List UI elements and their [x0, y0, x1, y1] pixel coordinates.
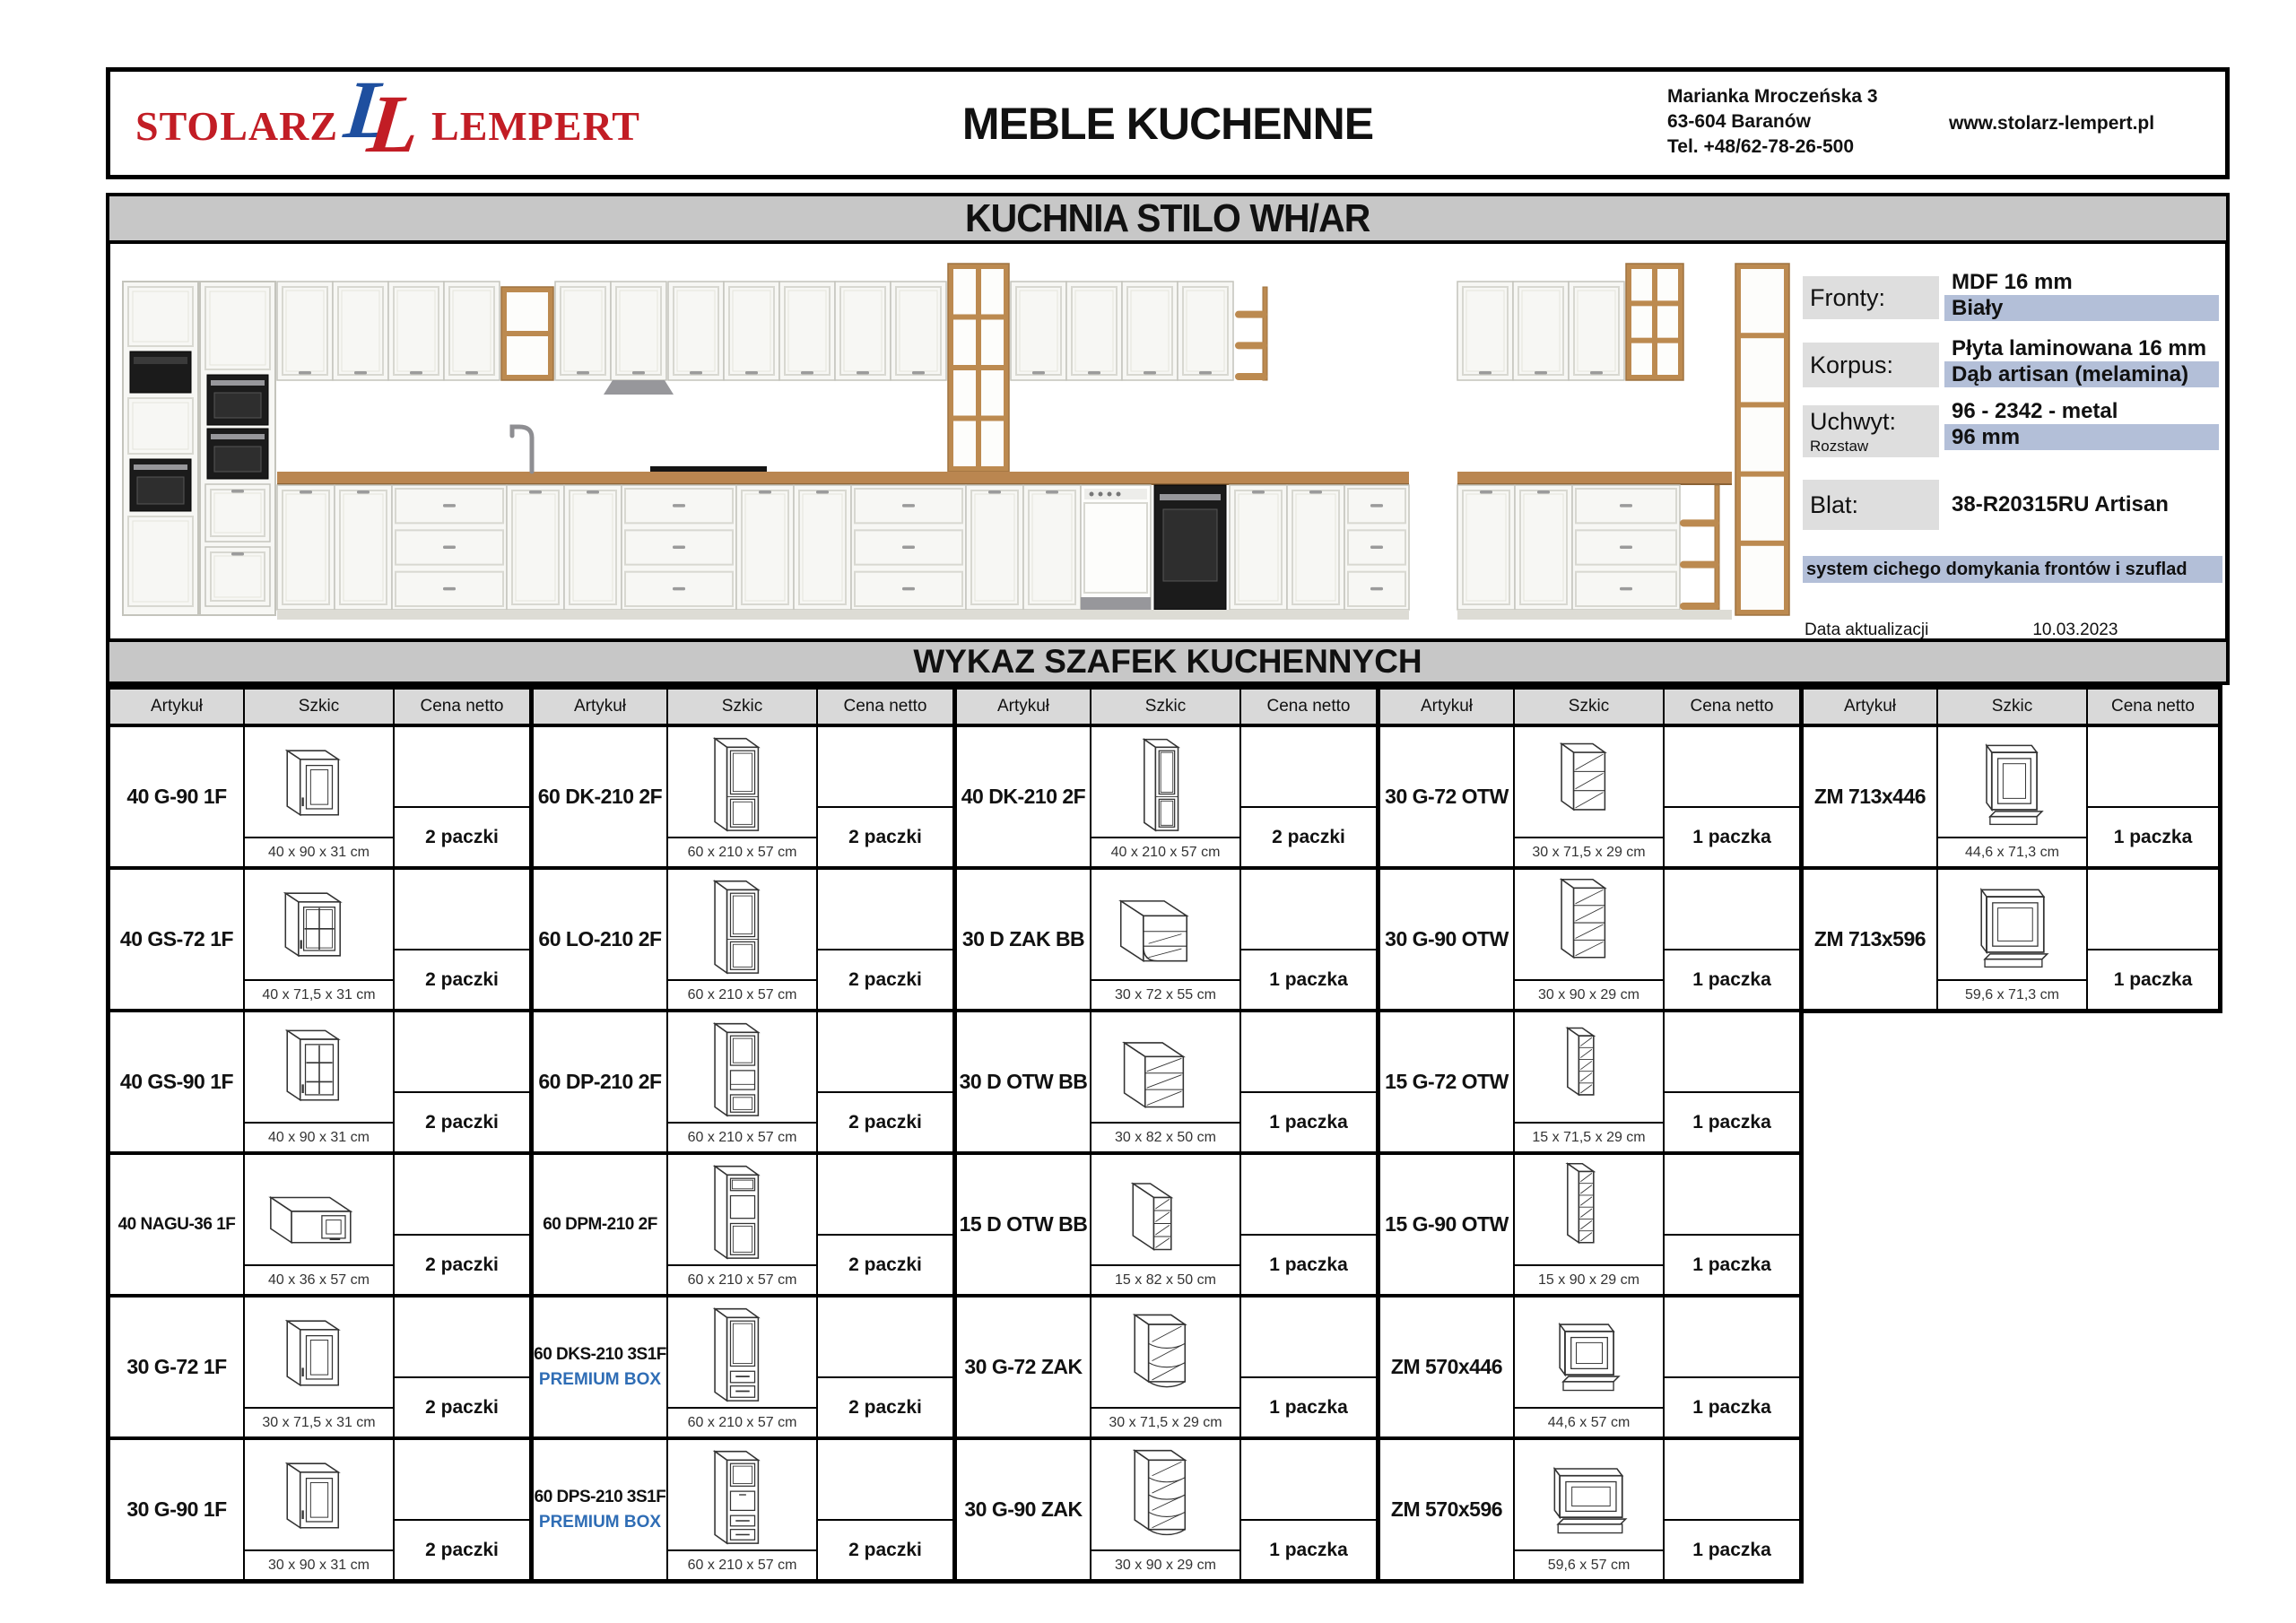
sketch-cell: 15 x 82 x 50 cm	[1090, 1155, 1239, 1294]
dimensions-label: 60 x 210 x 57 cm	[668, 1549, 816, 1579]
cabinet-list-title: WYKAZ SZAFEK KUCHENNYCH	[913, 643, 1422, 681]
sketch-cell: 30 x 90 x 29 cm	[1513, 870, 1663, 1009]
spec-sublabel: Rozstaw	[1810, 438, 1939, 456]
article-cell: ZM 713x446	[1804, 727, 1936, 866]
net-price-area	[2088, 870, 2218, 950]
article-code: 60 DPM-210 2F	[543, 1215, 657, 1235]
net-price-area	[1241, 870, 1376, 950]
price-cell: 1 paczka	[1239, 1012, 1376, 1151]
article-code: 40 GS-72 1F	[120, 927, 233, 951]
dimensions-label: 30 x 90 x 29 cm	[1515, 979, 1663, 1009]
logo-text-right: LEMPERT	[431, 102, 640, 150]
sketch-cell: 30 x 71,5 x 29 cm	[1513, 727, 1663, 866]
page-title: MEBLE KUCHENNE	[962, 98, 1373, 150]
dimensions-label: 30 x 90 x 31 cm	[245, 1549, 393, 1579]
dimensions-label: 30 x 90 x 29 cm	[1091, 1549, 1239, 1579]
table-column-group: Artykuł Szkic Cena netto 40 G-90 1F 40 x…	[106, 685, 529, 1584]
article-code: 30 D OTW BB	[960, 1070, 1088, 1094]
article-cell: 30 D OTW BB	[957, 1012, 1090, 1151]
address-line: Marianka Mroczeńska 3	[1667, 84, 1963, 109]
wall-horizontal-sketch-icon	[267, 1158, 371, 1262]
table-column-group: Artykuł Szkic Cena netto 60 DK-210 2F 60…	[529, 685, 952, 1584]
price-cell: 2 paczki	[816, 1440, 952, 1579]
dimensions-label: 59,6 x 57 cm	[1515, 1549, 1663, 1579]
table-row: 30 G-72 1F 30 x 71,5 x 31 cm 2 paczki	[110, 1298, 529, 1440]
package-count: 1 paczka	[1665, 808, 1799, 866]
price-cell: 2 paczki	[393, 1440, 529, 1579]
net-price-area	[818, 1298, 952, 1378]
dimensions-label: 30 x 71,5 x 29 cm	[1091, 1407, 1239, 1436]
tall-2door-sketch-icon	[691, 730, 795, 834]
dimensions-label: 60 x 210 x 57 cm	[668, 979, 816, 1009]
dimensions-label: 60 x 210 x 57 cm	[668, 1264, 816, 1294]
wall-open-narrow-5-sketch-icon	[1537, 1015, 1641, 1119]
sketch-cell: 60 x 210 x 57 cm	[666, 1298, 816, 1436]
address-line: Tel. +48/62-78-26-500	[1667, 135, 1963, 160]
sketch-cell: 30 x 71,5 x 31 cm	[243, 1298, 393, 1436]
sketch-cell: 60 x 210 x 57 cm	[666, 727, 816, 866]
price-cell: 1 paczka	[1239, 1440, 1376, 1579]
dimensions-label: 40 x 90 x 31 cm	[245, 1122, 393, 1151]
table-header-row: Artykuł Szkic Cena netto	[957, 690, 1376, 727]
article-cell: 30 G-90 OTW	[1380, 870, 1513, 1009]
article-code: 30 G-72 OTW	[1385, 785, 1509, 809]
dimensions-label: 40 x 36 x 57 cm	[245, 1264, 393, 1294]
table-header-row: Artykuł Szkic Cena netto	[534, 690, 952, 727]
dimensions-label: 40 x 210 x 57 cm	[1091, 837, 1239, 866]
dimensions-label: 44,6 x 57 cm	[1515, 1407, 1663, 1436]
package-count: 2 paczki	[818, 1521, 952, 1579]
package-count: 1 paczka	[1665, 1378, 1799, 1436]
price-cell: 1 paczka	[1663, 870, 1799, 1009]
kitchen-render-image	[112, 246, 1798, 635]
wall-corner-shelf-4-sketch-icon	[1114, 1443, 1218, 1547]
table-row: 15 G-90 OTW 15 x 90 x 29 cm 1 paczka	[1380, 1155, 1799, 1298]
article-code: 15 D OTW BB	[960, 1212, 1088, 1237]
table-row: 30 G-72 ZAK 30 x 71,5 x 29 cm 1 paczka	[957, 1298, 1376, 1440]
header-artykul: Artykuł	[957, 690, 1090, 724]
package-count: 1 paczka	[1665, 1093, 1799, 1151]
article-cell: 30 G-90 1F	[110, 1440, 243, 1579]
wall-door-sketch-icon	[267, 1300, 371, 1404]
net-price-area	[818, 1155, 952, 1236]
package-count: 2 paczki	[395, 1093, 529, 1151]
spec-values: 96 - 2342 - metal96 mm	[1944, 398, 2219, 450]
article-cell: 15 D OTW BB	[957, 1155, 1090, 1294]
tall-oven-micro-sketch-icon	[691, 1158, 795, 1262]
sketch-cell: 60 x 210 x 57 cm	[666, 1012, 816, 1151]
cabinet-table: Artykuł Szkic Cena netto 40 G-90 1F 40 x…	[106, 685, 2222, 1584]
price-cell: 2 paczki	[393, 1155, 529, 1294]
article-cell: 30 G-90 ZAK	[957, 1440, 1090, 1579]
table-row: 60 DP-210 2F 60 x 210 x 57 cm 2 paczki	[534, 1012, 952, 1155]
article-cell: 30 G-72 1F	[110, 1298, 243, 1436]
header-artykul: Artykuł	[1380, 690, 1513, 724]
table-header-row: Artykuł Szkic Cena netto	[1804, 690, 2218, 727]
article-cell: 60 DPS-210 3S1F PREMIUM BOX	[534, 1440, 666, 1579]
article-code: 15 G-72 OTW	[1385, 1070, 1509, 1094]
header-cena-netto: Cena netto	[393, 690, 529, 724]
company-address: Marianka Mroczeńska 3 63-604 Baranów Tel…	[1667, 84, 1963, 160]
spec-label: Korpus:	[1803, 343, 1939, 387]
price-cell: 1 paczka	[2086, 870, 2218, 1009]
package-count: 2 paczki	[818, 1378, 952, 1436]
sketch-cell: 40 x 71,5 x 31 cm	[243, 870, 393, 1009]
package-count: 2 paczki	[395, 1236, 529, 1294]
article-code: 60 DKS-210 3S1F	[534, 1345, 666, 1365]
package-count: 2 paczki	[818, 808, 952, 866]
table-row: 60 LO-210 2F 60 x 210 x 57 cm 2 paczki	[534, 870, 952, 1012]
package-count: 2 paczki	[818, 1093, 952, 1151]
table-row: 30 D OTW BB 30 x 82 x 50 cm 1 paczka	[957, 1012, 1376, 1155]
article-cell: 15 G-90 OTW	[1380, 1155, 1513, 1294]
spec-label: Uchwyt:Rozstaw	[1803, 405, 1939, 457]
table-column-group: Artykuł Szkic Cena netto 40 DK-210 2F 40…	[952, 685, 1376, 1584]
spec-values: MDF 16 mmBiały	[1944, 269, 2219, 321]
price-cell: 1 paczka	[1663, 727, 1799, 866]
price-cell: 2 paczki	[393, 870, 529, 1009]
sketch-cell: 40 x 90 x 31 cm	[243, 727, 393, 866]
article-code: 60 DK-210 2F	[538, 785, 662, 809]
price-cell: 2 paczki	[1239, 727, 1376, 866]
spec-value: Biały	[1944, 295, 2219, 321]
article-cell: 40 G-90 1F	[110, 727, 243, 866]
sketch-cell: 40 x 210 x 57 cm	[1090, 727, 1239, 866]
price-cell: 1 paczka	[1239, 870, 1376, 1009]
net-price-area	[818, 870, 952, 950]
dimensions-label: 15 x 82 x 50 cm	[1091, 1264, 1239, 1294]
spec-row: Fronty: MDF 16 mmBiały	[1803, 276, 2224, 319]
dimensions-label: 59,6 x 71,3 cm	[1938, 979, 2086, 1009]
package-count: 1 paczka	[1241, 950, 1376, 1009]
header-szkic: Szkic	[1513, 690, 1663, 724]
price-cell: 1 paczka	[2086, 727, 2218, 866]
package-count: 2 paczki	[395, 1378, 529, 1436]
article-code: ZM 570x446	[1391, 1355, 1502, 1379]
table-row: 40 NAGU-36 1F 40 x 36 x 57 cm 2 paczki	[110, 1155, 529, 1298]
header-szkic: Szkic	[243, 690, 393, 724]
net-price-area	[395, 1155, 529, 1236]
premium-box-label: PREMIUM BOX	[539, 1370, 661, 1390]
kitchen-section: Fronty: MDF 16 mmBiały Korpus: Płyta lam…	[106, 244, 2230, 638]
spec-label: Fronty:	[1803, 276, 1939, 319]
end-panel-tall-sketch-icon	[1961, 730, 2065, 834]
logo-text-left: STOLARZ	[135, 102, 338, 150]
address-line: 63-604 Baranów	[1667, 109, 1963, 135]
spec-panel: Fronty: MDF 16 mmBiały Korpus: Płyta lam…	[1803, 244, 2224, 637]
package-count: 2 paczki	[395, 950, 529, 1009]
package-count: 1 paczka	[1241, 1236, 1376, 1294]
table-row: 60 DK-210 2F 60 x 210 x 57 cm 2 paczki	[534, 727, 952, 870]
price-cell: 2 paczki	[393, 1298, 529, 1436]
article-cell: 40 GS-72 1F	[110, 870, 243, 1009]
wall-open-4-sketch-icon	[1537, 872, 1641, 976]
net-price-area	[1665, 1298, 1799, 1378]
net-price-area	[1241, 1298, 1376, 1378]
price-cell: 2 paczki	[816, 1298, 952, 1436]
table-row: 30 D ZAK BB 30 x 72 x 55 cm 1 paczka	[957, 870, 1376, 1012]
article-code: ZM 570x596	[1391, 1497, 1502, 1522]
price-cell: 1 paczka	[1663, 1155, 1799, 1294]
article-cell: 15 G-72 OTW	[1380, 1012, 1513, 1151]
table-row: 15 G-72 OTW 15 x 71,5 x 29 cm 1 paczka	[1380, 1012, 1799, 1155]
spec-label: Blat:	[1803, 480, 1939, 530]
end-panel-wide-sketch-icon	[1537, 1443, 1641, 1547]
table-row: ZM 713x446 44,6 x 71,3 cm 1 paczka	[1804, 727, 2218, 870]
price-cell: 2 paczki	[816, 727, 952, 866]
price-cell: 2 paczki	[816, 870, 952, 1009]
package-count: 1 paczka	[2088, 950, 2218, 1009]
header-artykul: Artykuł	[110, 690, 243, 724]
sketch-cell: 30 x 72 x 55 cm	[1090, 870, 1239, 1009]
net-price-area	[1665, 1440, 1799, 1521]
package-count: 1 paczka	[1665, 1521, 1799, 1579]
article-code: 30 G-72 ZAK	[964, 1355, 1082, 1379]
cabinet-list-banner: WYKAZ SZAFEK KUCHENNYCH	[106, 638, 2230, 685]
table-row: ZM 570x596 59,6 x 57 cm 1 paczka	[1380, 1440, 1799, 1579]
price-cell: 1 paczka	[1239, 1155, 1376, 1294]
package-count: 2 paczki	[395, 1521, 529, 1579]
sketch-cell: 30 x 82 x 50 cm	[1090, 1012, 1239, 1151]
dimensions-label: 30 x 71,5 x 31 cm	[245, 1407, 393, 1436]
article-cell: 60 DK-210 2F	[534, 727, 666, 866]
spec-value: 38-R20315RU Artisan	[1944, 492, 2169, 518]
header-cena-netto: Cena netto	[1663, 690, 1799, 724]
article-cell: 40 GS-90 1F	[110, 1012, 243, 1151]
header-szkic: Szkic	[666, 690, 816, 724]
price-cell: 2 paczki	[393, 1012, 529, 1151]
article-code: 30 G-90 1F	[126, 1497, 226, 1522]
package-count: 1 paczka	[1665, 1236, 1799, 1294]
tall-oven-sketch-icon	[691, 1015, 795, 1119]
article-code: ZM 713x596	[1814, 927, 1926, 951]
net-price-area	[395, 1298, 529, 1378]
article-code: 60 DP-210 2F	[538, 1070, 661, 1094]
wall-door-sketch-icon	[267, 1443, 371, 1547]
sketch-cell: 59,6 x 71,3 cm	[1936, 870, 2086, 1009]
dimensions-label: 60 x 210 x 57 cm	[668, 1122, 816, 1151]
article-code: 60 DPS-210 3S1F	[535, 1488, 666, 1507]
net-price-area	[1241, 727, 1376, 808]
article-code: 30 G-72 1F	[126, 1355, 226, 1379]
product-banner: KUCHNIA STILO WH/AR	[106, 193, 2230, 244]
sketch-cell: 15 x 90 x 29 cm	[1513, 1155, 1663, 1294]
spec-values: Płyta laminowana 16 mmDąb artisan (melam…	[1944, 335, 2219, 387]
article-code: 60 LO-210 2F	[538, 927, 661, 951]
article-cell: 40 NAGU-36 1F	[110, 1155, 243, 1294]
article-cell: 60 DPM-210 2F	[534, 1155, 666, 1294]
sketch-cell: 30 x 90 x 29 cm	[1090, 1440, 1239, 1579]
wall-door-sketch-icon	[267, 730, 371, 834]
net-price-area	[1241, 1440, 1376, 1521]
header-szkic: Szkic	[1936, 690, 2086, 724]
header-szkic: Szkic	[1090, 690, 1239, 724]
header-artykul: Artykuł	[534, 690, 666, 724]
table-row: 40 DK-210 2F 40 x 210 x 57 cm 2 paczki	[957, 727, 1376, 870]
package-count: 1 paczka	[2088, 808, 2218, 866]
article-cell: ZM 570x446	[1380, 1298, 1513, 1436]
dimensions-label: 30 x 71,5 x 29 cm	[1515, 837, 1663, 866]
article-code: 30 G-90 ZAK	[964, 1497, 1082, 1522]
price-cell: 2 paczki	[816, 1012, 952, 1151]
package-count: 1 paczka	[1241, 1378, 1376, 1436]
price-cell: 2 paczki	[393, 727, 529, 866]
sketch-cell: 40 x 90 x 31 cm	[243, 1012, 393, 1151]
header-cena-netto: Cena netto	[2086, 690, 2218, 724]
sketch-cell: 15 x 71,5 x 29 cm	[1513, 1012, 1663, 1151]
package-count: 2 paczki	[395, 808, 529, 866]
table-row: 60 DPS-210 3S1F PREMIUM BOX 60 x 210 x 5…	[534, 1440, 952, 1579]
article-cell: 60 DP-210 2F	[534, 1012, 666, 1151]
package-count: 1 paczka	[1241, 1093, 1376, 1151]
table-row: 30 G-90 ZAK 30 x 90 x 29 cm 1 paczka	[957, 1440, 1376, 1579]
sketch-cell: 44,6 x 57 cm	[1513, 1298, 1663, 1436]
spec-row: Uchwyt:Rozstaw 96 - 2342 - metal96 mm	[1803, 405, 2224, 457]
dimensions-label: 15 x 71,5 x 29 cm	[1515, 1122, 1663, 1151]
spec-value: 96 - 2342 - metal	[1944, 398, 2219, 424]
sketch-cell: 60 x 210 x 57 cm	[666, 870, 816, 1009]
table-row: 40 GS-72 1F 40 x 71,5 x 31 cm 2 paczki	[110, 870, 529, 1012]
table-row: 30 G-90 OTW 30 x 90 x 29 cm 1 paczka	[1380, 870, 1799, 1012]
sketch-cell: 40 x 36 x 57 cm	[243, 1155, 393, 1294]
net-price-area	[395, 727, 529, 808]
end-panel-tall-wide-sketch-icon	[1961, 872, 2065, 976]
spec-values: 38-R20315RU Artisan	[1944, 480, 2219, 530]
wall-corner-shelf-3-sketch-icon	[1114, 1300, 1218, 1404]
article-cell: 30 D ZAK BB	[957, 870, 1090, 1009]
article-code: 40 GS-90 1F	[120, 1070, 233, 1094]
wall-glass-4-sketch-icon	[267, 872, 371, 976]
base-open-shelf-narrow-sketch-icon	[1114, 1158, 1218, 1262]
net-price-area	[818, 1012, 952, 1093]
table-row: 15 D OTW BB 15 x 82 x 50 cm 1 paczka	[957, 1155, 1376, 1298]
spec-value: Płyta laminowana 16 mm	[1944, 335, 2219, 361]
table-row: 30 G-90 1F 30 x 90 x 31 cm 2 paczki	[110, 1440, 529, 1579]
dimensions-label: 44,6 x 71,3 cm	[1938, 837, 2086, 866]
article-code: 40 DK-210 2F	[961, 785, 1085, 809]
price-cell: 1 paczka	[1239, 1298, 1376, 1436]
sketch-cell: 30 x 90 x 31 cm	[243, 1440, 393, 1579]
table-column-group: Artykuł Szkic Cena netto ZM 713x446 44,6…	[1804, 685, 2222, 1013]
sketch-cell: 60 x 210 x 57 cm	[666, 1155, 816, 1294]
spec-value: 96 mm	[1944, 424, 2219, 450]
article-code: 40 NAGU-36 1F	[118, 1215, 236, 1235]
dimensions-label: 40 x 90 x 31 cm	[245, 837, 393, 866]
updated-value: 10.03.2023	[2032, 621, 2118, 640]
dimensions-label: 60 x 210 x 57 cm	[668, 837, 816, 866]
article-cell: 30 G-72 OTW	[1380, 727, 1513, 866]
spec-note: system cichego domykania frontów i szufl…	[1803, 556, 2222, 583]
net-price-area	[1665, 727, 1799, 808]
end-panel-small-sketch-icon	[1537, 1300, 1641, 1404]
sketch-cell: 44,6 x 71,3 cm	[1936, 727, 2086, 866]
table-header-row: Artykuł Szkic Cena netto	[110, 690, 529, 727]
wall-open-3-sketch-icon	[1537, 730, 1641, 834]
net-price-area	[1241, 1155, 1376, 1236]
table-row: 60 DKS-210 3S1F PREMIUM BOX 60 x 210 x 5…	[534, 1298, 952, 1440]
net-price-area	[395, 1440, 529, 1521]
article-code: 30 D ZAK BB	[962, 927, 1084, 951]
net-price-area	[1665, 1155, 1799, 1236]
article-code: 15 G-90 OTW	[1385, 1212, 1509, 1237]
net-price-area	[818, 727, 952, 808]
tall-2door-narrow-sketch-icon	[1114, 730, 1218, 834]
header-cena-netto: Cena netto	[1239, 690, 1376, 724]
header-artykul: Artykuł	[1804, 690, 1936, 724]
net-price-area	[2088, 727, 2218, 808]
table-column-group: Artykuł Szkic Cena netto 30 G-72 OTW 30 …	[1376, 685, 1804, 1584]
page-header: STOLARZ LL LEMPERT MEBLE KUCHENNE Marian…	[106, 67, 2230, 179]
table-row: ZM 713x596 59,6 x 71,3 cm 1 paczka	[1804, 870, 2218, 1009]
dimensions-label: 60 x 210 x 57 cm	[668, 1407, 816, 1436]
net-price-area	[395, 870, 529, 950]
price-cell: 1 paczka	[1663, 1440, 1799, 1579]
package-count: 2 paczki	[818, 950, 952, 1009]
table-header-row: Artykuł Szkic Cena netto	[1380, 690, 1799, 727]
package-count: 1 paczka	[1665, 950, 1799, 1009]
company-website: www.stolarz-lempert.pl	[1949, 113, 2154, 135]
base-corner-open-sketch-icon	[1114, 872, 1218, 976]
sketch-cell: 30 x 71,5 x 29 cm	[1090, 1298, 1239, 1436]
sketch-cell: 59,6 x 57 cm	[1513, 1440, 1663, 1579]
article-code: 40 G-90 1F	[126, 785, 226, 809]
article-cell: 30 G-72 ZAK	[957, 1298, 1090, 1436]
table-row: 30 G-72 OTW 30 x 71,5 x 29 cm 1 paczka	[1380, 727, 1799, 870]
price-cell: 2 paczki	[816, 1155, 952, 1294]
spec-updated: Data aktualizacji10.03.2023	[1805, 621, 2221, 640]
package-count: 2 paczki	[818, 1236, 952, 1294]
spec-row: Blat: 38-R20315RU Artisan	[1803, 480, 2224, 530]
article-cell: ZM 713x596	[1804, 870, 1936, 1009]
price-cell: 1 paczka	[1663, 1298, 1799, 1436]
spec-row: Korpus: Płyta laminowana 16 mmDąb artisa…	[1803, 343, 2224, 387]
article-code: ZM 713x446	[1814, 785, 1926, 809]
tall-drawers-sketch-icon	[691, 1300, 795, 1404]
wall-open-narrow-6-sketch-icon	[1537, 1158, 1641, 1262]
spec-value: Dąb artisan (melamina)	[1944, 361, 2219, 387]
net-price-area	[395, 1012, 529, 1093]
article-cell: 60 DKS-210 3S1F PREMIUM BOX	[534, 1298, 666, 1436]
table-row: 40 GS-90 1F 40 x 90 x 31 cm 2 paczki	[110, 1012, 529, 1155]
product-name: KUCHNIA STILO WH/AR	[965, 196, 1370, 241]
article-cell: ZM 570x596	[1380, 1440, 1513, 1579]
company-logo: STOLARZ LL LEMPERT	[135, 79, 640, 172]
dimensions-label: 30 x 72 x 55 cm	[1091, 979, 1239, 1009]
table-row: 40 G-90 1F 40 x 90 x 31 cm 2 paczki	[110, 727, 529, 870]
table-row: ZM 570x446 44,6 x 57 cm 1 paczka	[1380, 1298, 1799, 1440]
net-price-area	[1665, 1012, 1799, 1093]
article-code: 30 G-90 OTW	[1385, 927, 1509, 951]
wall-glass-6-sketch-icon	[267, 1015, 371, 1119]
article-cell: 60 LO-210 2F	[534, 870, 666, 1009]
spec-value: MDF 16 mm	[1944, 269, 2219, 295]
logo-ll-monogram-icon: LL	[342, 79, 428, 172]
table-row: 60 DPM-210 2F 60 x 210 x 57 cm 2 paczki	[534, 1155, 952, 1298]
net-price-area	[1241, 1012, 1376, 1093]
article-cell: 40 DK-210 2F	[957, 727, 1090, 866]
premium-box-label: PREMIUM BOX	[539, 1513, 661, 1532]
tall-oven-drawers-sketch-icon	[691, 1443, 795, 1547]
tall-2door-sketch-icon	[691, 872, 795, 976]
net-price-area	[818, 1440, 952, 1521]
header-cena-netto: Cena netto	[816, 690, 952, 724]
price-cell: 1 paczka	[1663, 1012, 1799, 1151]
package-count: 1 paczka	[1241, 1521, 1376, 1579]
sketch-cell: 60 x 210 x 57 cm	[666, 1440, 816, 1579]
package-count: 2 paczki	[1241, 808, 1376, 866]
dimensions-label: 15 x 90 x 29 cm	[1515, 1264, 1663, 1294]
net-price-area	[1665, 870, 1799, 950]
